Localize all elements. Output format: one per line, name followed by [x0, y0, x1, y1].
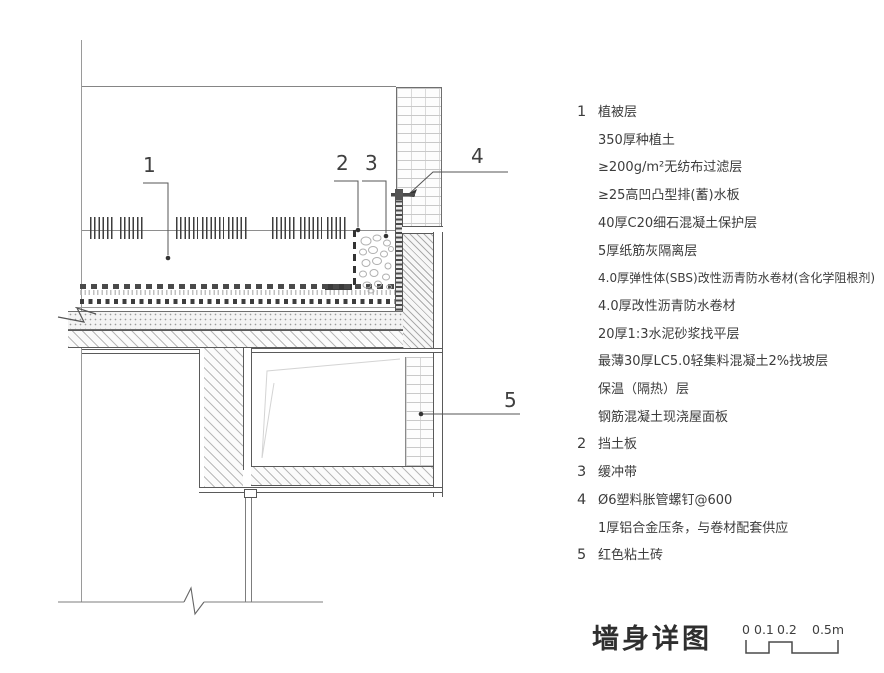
legend-line: ≥25高凹凸型排(蓄)水板: [598, 182, 881, 210]
legend-line: 钢筋混凝土现浇屋面板: [598, 404, 881, 432]
legend-line: 20厚1:3水泥砂浆找平层: [598, 321, 881, 349]
callout-5: 5: [504, 390, 517, 410]
legend-item-2: 2 挡土板: [565, 431, 881, 459]
legend-line: ≥200g/m²无纺布过滤层: [598, 154, 881, 182]
legend-line: 植被层: [598, 99, 881, 127]
legend-item-number: 3: [565, 459, 598, 487]
legend-line: 1厚铝合金压条，与卷材配套供应: [598, 515, 881, 543]
legend-line: 缓冲带: [598, 459, 881, 487]
leader-line-4: [404, 172, 508, 197]
scale-label-0: 0: [742, 622, 750, 637]
screw-fixing: [391, 189, 415, 200]
legend-line: 5厚纸筋灰隔离层: [598, 238, 881, 266]
sheet-title: 墙身详图: [592, 617, 712, 656]
legend-line: 红色粘土砖: [598, 542, 881, 570]
legend-item-5: 5 红色粘土砖: [565, 542, 881, 570]
legend-item-4: 4 Ø6塑料胀管螺钉@600 1厚铝合金压条，与卷材配套供应: [565, 487, 881, 542]
leader-line-5: [419, 412, 520, 417]
leader-line-1: [143, 183, 170, 260]
scale-label-02: 0.2: [777, 622, 797, 637]
legend-line: Ø6塑料胀管螺钉@600: [598, 487, 881, 515]
legend-line: 4.0厚改性沥青防水卷材: [598, 293, 881, 321]
gravel-pebbles: [360, 235, 394, 293]
break-mark-ground: [184, 588, 204, 614]
legend-line: 350厚种植土: [598, 127, 881, 155]
callout-4: 4: [471, 146, 484, 166]
legend-line: 4.0厚弹性体(SBS)改性沥青防水卷材(含化学阻根剂): [598, 265, 881, 293]
callout-2: 2: [336, 153, 349, 173]
scale-bar: [746, 640, 838, 653]
legend-line: 最薄30厚LC5.0轻集料混凝土2%找坡层: [598, 348, 881, 376]
callout-1: 1: [143, 155, 156, 175]
legend-item-number: 4: [565, 487, 598, 542]
scale-label-05m: 0.5m: [812, 622, 844, 637]
leader-line-2: [334, 181, 360, 232]
legend-line: 保温（隔热）层: [598, 376, 881, 404]
legend-item-3: 3 缓冲带: [565, 459, 881, 487]
break-mark-roof: [58, 308, 96, 322]
callout-3: 3: [365, 153, 378, 173]
legend-item-number: 2: [565, 431, 598, 459]
legend-item-number: 5: [565, 542, 598, 570]
legend-item-1: 1 植被层 350厚种植土 ≥200g/m²无纺布过滤层 ≥25高凹凸型排(蓄)…: [565, 99, 881, 431]
wall-section-detail-sheet: 1 2 3 4 5 1 植被层 350厚种植土 ≥200g/m²无纺布过滤层 ≥…: [0, 0, 884, 673]
legend: 1 植被层 350厚种植土 ≥200g/m²无纺布过滤层 ≥25高凹凸型排(蓄)…: [565, 99, 881, 570]
legend-line: 40厚C20细石混凝土保护层: [598, 210, 881, 238]
scale-label-01: 0.1: [754, 622, 774, 637]
legend-item-number: 1: [565, 99, 598, 431]
legend-line: 挡土板: [598, 431, 881, 459]
leader-line-3: [362, 181, 388, 238]
cavity-faint-lines: [262, 359, 400, 458]
